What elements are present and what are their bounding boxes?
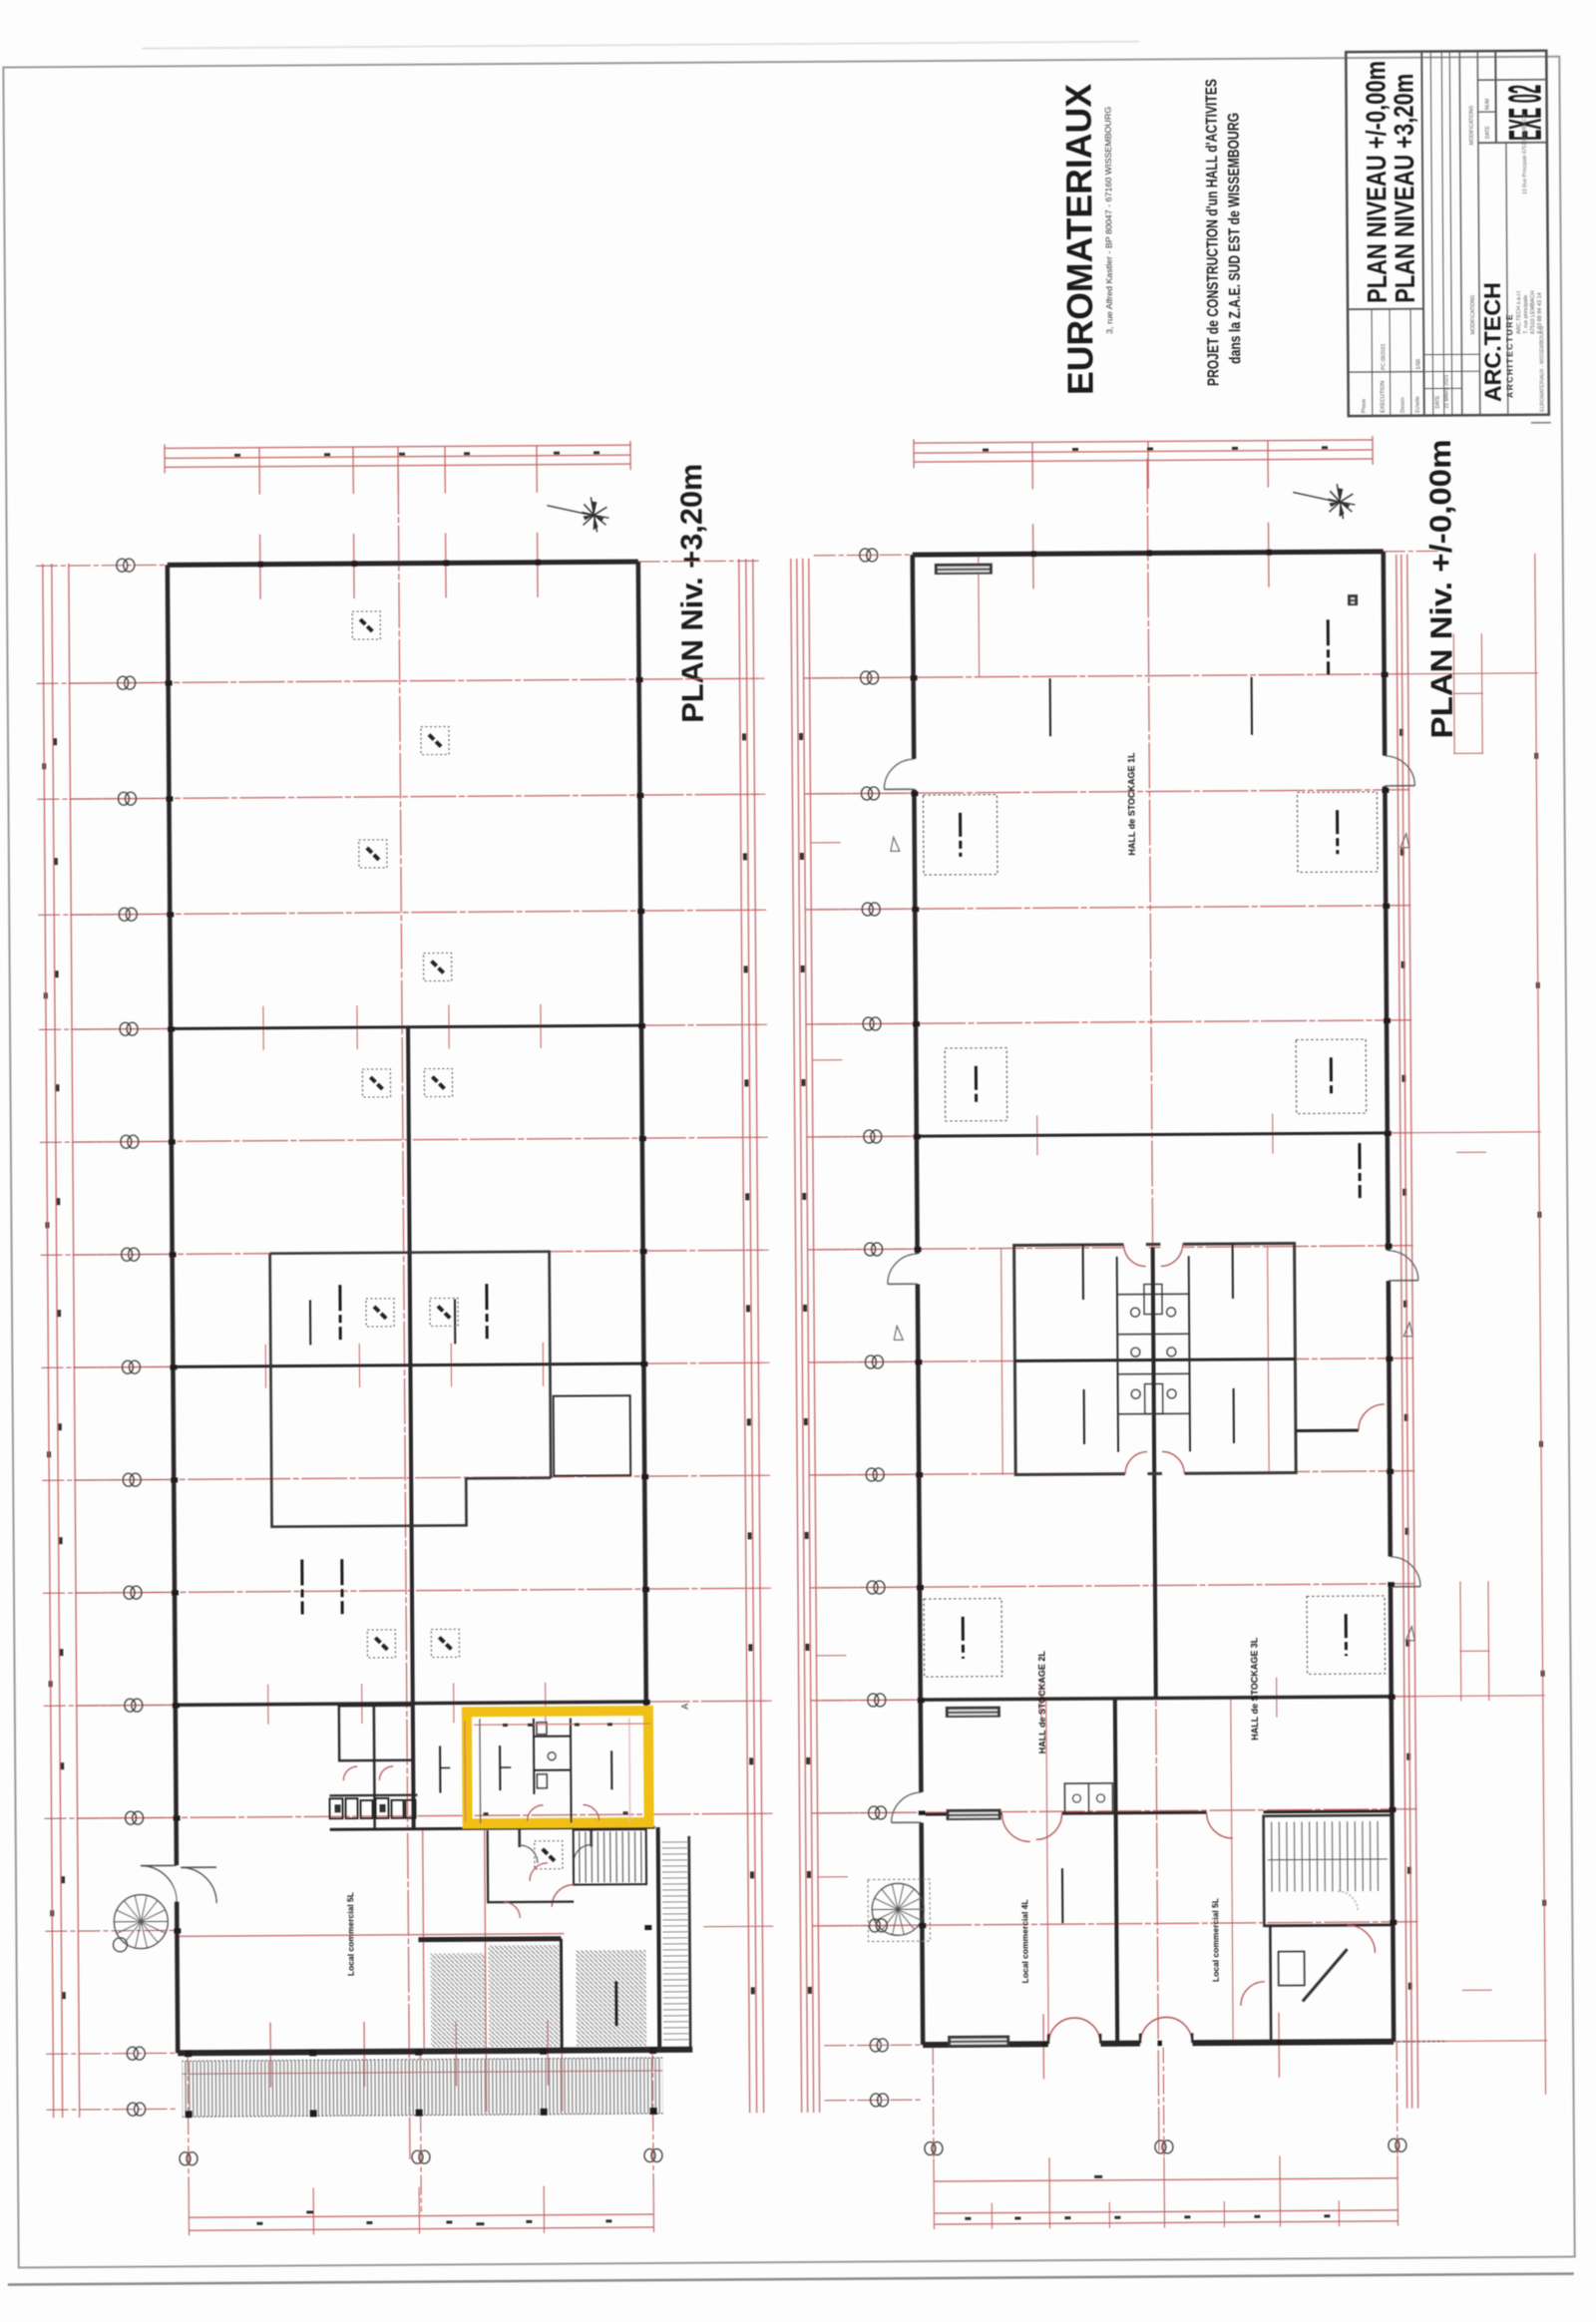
svg-text:DATE: DATE [1435,395,1441,409]
svg-text:21 MARS 2021: 21 MARS 2021 [1444,374,1450,408]
svg-text:DATE: DATE [1485,125,1491,139]
svg-text:Local commercial 5L: Local commercial 5L [1210,1898,1221,1982]
svg-text:MODIFICATIONS: MODIFICATIONS [1469,105,1475,145]
svg-text:7, rue principale: 7, rue principale [1523,295,1529,334]
svg-text:13 Rue Principale 67510 LEMBAC: 13 Rue Principale 67510 LEMBACH [1522,114,1529,194]
svg-text:Echelle: Echelle [1415,396,1421,413]
svg-text:PC 09/2021: PC 09/2021 [1381,343,1387,370]
svg-text:Local commercial 5L: Local commercial 5L [345,1892,356,1976]
svg-text:PROJET de CONSTRUCTION d'un HA: PROJET de CONSTRUCTION d'un HALL d'ACTIV… [1203,79,1222,386]
svg-text:3, rue Alfred Kastler - BP 800: 3, rue Alfred Kastler - BP 80047 - 67160… [1104,107,1115,334]
svg-text:ARC.TECH: ARC.TECH [1479,282,1506,402]
svg-text:A: A [680,1704,690,1710]
svg-text:Local commercial 4L: Local commercial 4L [1019,1899,1030,1983]
svg-text:Dessin: Dessin [1400,397,1406,413]
svg-text:NUM: NUM [1485,99,1491,110]
svg-text:HALL de STOCKAGE 3L: HALL de STOCKAGE 3L [1249,1637,1260,1741]
svg-text:HALL de STOCKAGE 1L: HALL de STOCKAGE 1L [1126,752,1137,856]
svg-text:1/50: 1/50 [1415,359,1421,370]
svg-text:PLAN Niv. +3,20m: PLAN Niv. +3,20m [673,464,710,723]
svg-text:HALL de STOCKAGE 2L: HALL de STOCKAGE 2L [1036,1651,1047,1754]
svg-text:EXECUTION: EXECUTION [1381,381,1387,413]
svg-text:EUROMATERIAUX: EUROMATERIAUX [1057,84,1100,395]
svg-text:Phase: Phase [1362,399,1368,413]
svg-text:MODIFICATIONS: MODIFICATIONS [1470,294,1476,334]
svg-text:67510 LEMBACH: 67510 LEMBACH [1530,290,1536,333]
svg-text:PLAN NIVEAU +3,20m: PLAN NIVEAU +3,20m [1388,74,1420,303]
svg-text:EUROMATERIAUX - WISSEMBOURG: EUROMATERIAUX - WISSEMBOURG [1539,325,1546,411]
svg-text:ARC.TECH s.a.r.l.: ARC.TECH s.a.r.l. [1516,289,1522,334]
svg-text:dans la Z.A.E. SUD EST de WISS: dans la Z.A.E. SUD EST de WISSEMBOURG [1226,113,1245,364]
svg-text:ARCHITECTURE: ARCHITECTURE [1504,313,1515,398]
